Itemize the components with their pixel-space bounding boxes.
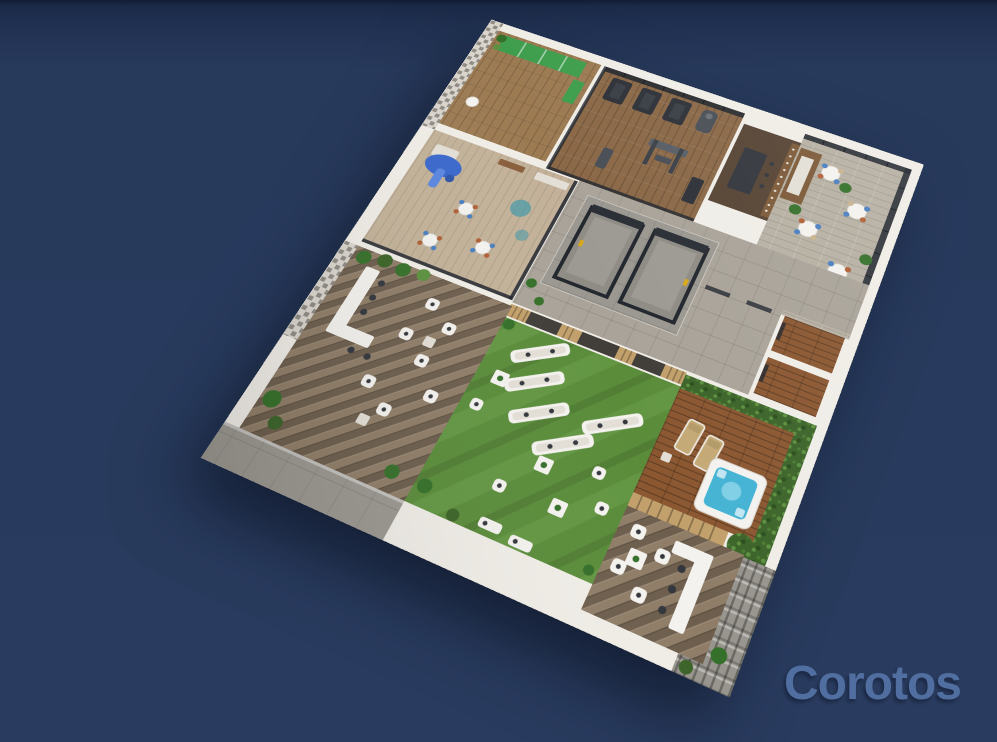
corotos-watermark: Corotos [784, 656, 961, 711]
floor-plan-3d [201, 19, 924, 697]
lighting-overlay [201, 19, 924, 697]
floor-plan-shadow-wrapper [0, 0, 997, 742]
screenshot-stage: Corotos [0, 0, 997, 742]
floor-plan-svg [201, 19, 924, 697]
